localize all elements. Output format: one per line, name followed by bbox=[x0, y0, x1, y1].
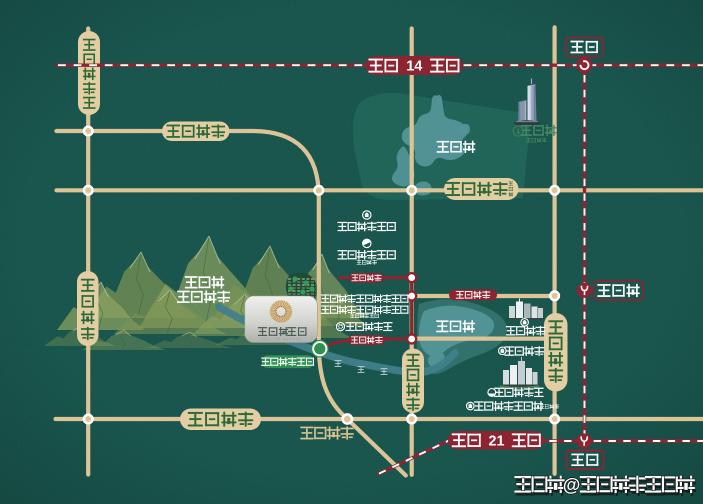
svg-text:LONG YUE MANSION: LONG YUE MANSION bbox=[260, 337, 302, 341]
svg-text:21: 21 bbox=[489, 433, 505, 449]
svg-text:@: @ bbox=[563, 475, 581, 495]
svg-text:14: 14 bbox=[406, 59, 422, 75]
